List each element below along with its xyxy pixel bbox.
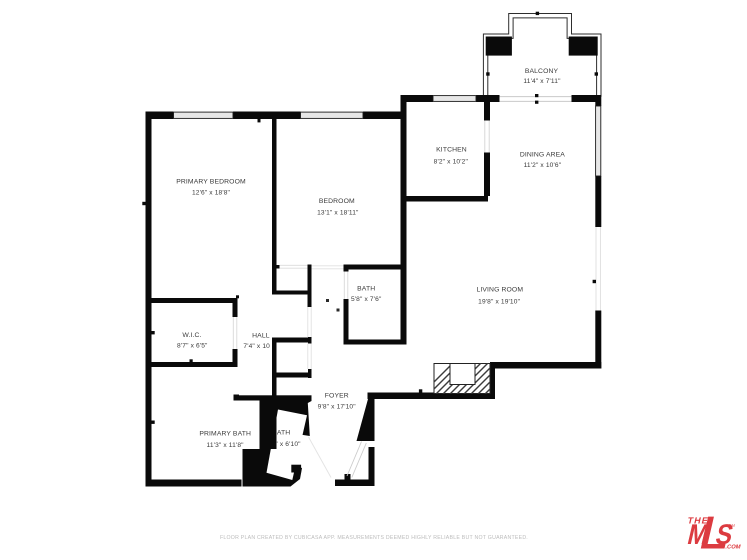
svg-text:11'4" x 7'11": 11'4" x 7'11" bbox=[523, 78, 561, 85]
svg-text:BALCONY: BALCONY bbox=[525, 68, 559, 75]
svg-text:19'8" x 19'10": 19'8" x 19'10" bbox=[478, 299, 520, 306]
svg-text:BATH: BATH bbox=[357, 286, 375, 293]
svg-text:11'3" x 11'8": 11'3" x 11'8" bbox=[207, 442, 245, 449]
svg-text:PRIMARY BEDROOM: PRIMARY BEDROOM bbox=[176, 178, 246, 185]
svg-text:BEDROOM: BEDROOM bbox=[319, 198, 355, 205]
svg-text:11'2" x 10'6": 11'2" x 10'6" bbox=[524, 162, 562, 169]
svg-text:8'2" x 10'2": 8'2" x 10'2" bbox=[434, 159, 469, 166]
svg-text:7'4" x 10: 7'4" x 10 bbox=[243, 343, 270, 350]
svg-text:FLOOR PLAN CREATED BY CUBICASA: FLOOR PLAN CREATED BY CUBICASA APP. MEAS… bbox=[220, 535, 528, 541]
svg-text:DINING AREA: DINING AREA bbox=[520, 151, 565, 158]
svg-text:HALL: HALL bbox=[252, 332, 270, 339]
svg-text:9'8" x 17'10": 9'8" x 17'10" bbox=[318, 404, 357, 411]
svg-text:5'8" x 7'6": 5'8" x 7'6" bbox=[351, 296, 382, 303]
svg-text:8'7" x 6'5": 8'7" x 6'5" bbox=[177, 343, 208, 350]
svg-text:FOYER: FOYER bbox=[325, 393, 349, 400]
svg-text:PRIMARY BATH: PRIMARY BATH bbox=[199, 431, 251, 438]
svg-text:13'1" x 18'11": 13'1" x 18'11" bbox=[317, 210, 359, 217]
svg-text:W.I.C.: W.I.C. bbox=[182, 332, 201, 339]
svg-text:.COM: .COM bbox=[725, 545, 742, 551]
svg-text:KITCHEN: KITCHEN bbox=[436, 147, 467, 154]
svg-text:TM: TM bbox=[728, 523, 736, 528]
svg-text:12'6" x 18'8": 12'6" x 18'8" bbox=[192, 189, 231, 196]
svg-text:LIVING ROOM: LIVING ROOM bbox=[476, 287, 523, 294]
